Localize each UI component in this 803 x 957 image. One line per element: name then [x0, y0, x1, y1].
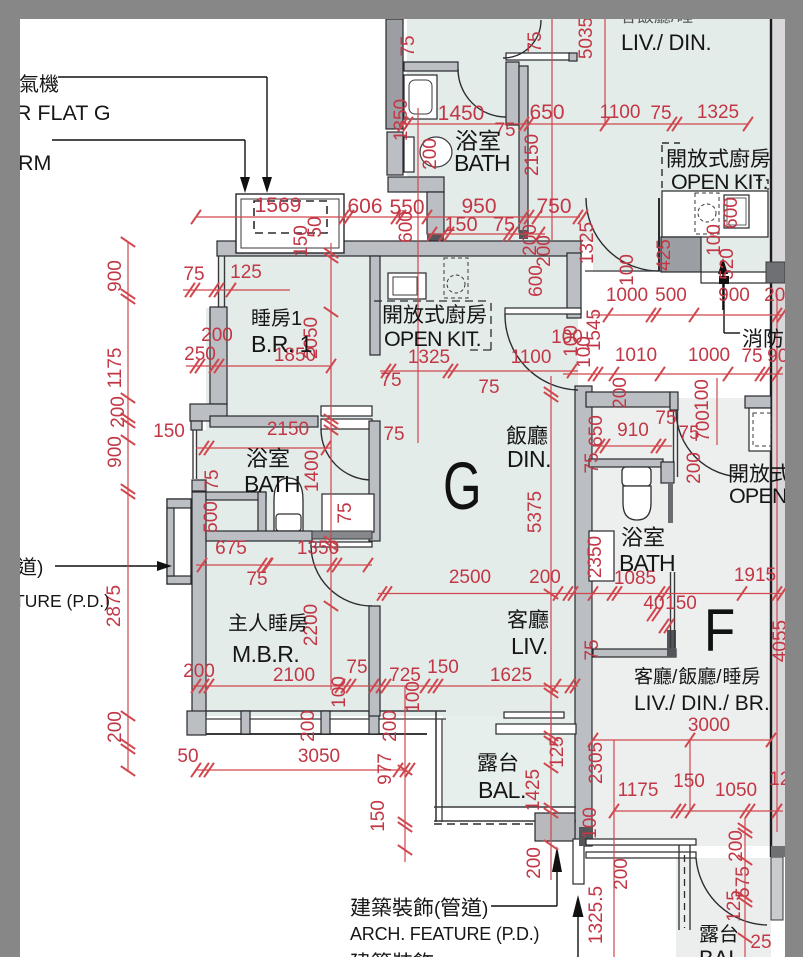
svg-text:900: 900 [105, 436, 126, 468]
svg-text:1450: 1450 [438, 102, 485, 125]
svg-text:75: 75 [202, 469, 223, 490]
svg-text:75: 75 [650, 103, 671, 124]
svg-text:200: 200 [684, 452, 705, 484]
svg-text:BATH: BATH [619, 550, 675, 576]
svg-text:1050: 1050 [715, 780, 757, 801]
svg-text:200: 200 [726, 830, 747, 862]
svg-text:650: 650 [586, 415, 607, 447]
svg-text:OPEN KIT.: OPEN KIT. [671, 170, 768, 194]
svg-text:425: 425 [654, 239, 675, 271]
svg-text:LIV./ DIN./ BR.: LIV./ DIN./ BR. [634, 692, 770, 715]
svg-text:): ) [482, 899, 488, 920]
svg-text:75: 75 [383, 424, 404, 445]
svg-text:(: ( [434, 899, 441, 920]
svg-text:900: 900 [718, 285, 750, 306]
svg-text:200: 200 [611, 858, 632, 890]
svg-text:25: 25 [750, 932, 771, 953]
svg-text:600: 600 [526, 265, 547, 297]
svg-text:200: 200 [105, 711, 126, 743]
svg-text:75: 75 [493, 214, 515, 236]
svg-text:1: 1 [291, 308, 302, 330]
svg-text:100: 100 [403, 681, 424, 713]
svg-text:1625: 1625 [490, 665, 532, 686]
svg-text:150: 150 [153, 421, 185, 442]
svg-text:BATH: BATH [244, 471, 300, 497]
svg-text:1000: 1000 [688, 345, 730, 366]
svg-text:G: G [443, 450, 482, 524]
svg-text:RM: RM [18, 151, 51, 175]
svg-text:150: 150 [427, 657, 459, 678]
svg-text:100: 100 [329, 676, 350, 708]
svg-text:LIV./ DIN.: LIV./ DIN. [621, 30, 711, 55]
svg-text:): ) [37, 558, 43, 579]
svg-text:F: F [704, 597, 735, 664]
svg-text:50: 50 [305, 216, 326, 237]
svg-text:1010: 1010 [615, 345, 657, 366]
svg-text:1325: 1325 [577, 222, 598, 264]
svg-text:1400: 1400 [302, 450, 323, 492]
svg-text:200: 200 [534, 235, 555, 267]
svg-text:675: 675 [215, 538, 247, 559]
svg-text:125: 125 [230, 262, 262, 283]
svg-text:/: / [672, 667, 678, 688]
svg-text:75: 75 [346, 657, 367, 678]
svg-text:2150: 2150 [522, 134, 543, 176]
svg-text:250: 250 [184, 344, 216, 365]
svg-text:BAL.: BAL. [699, 946, 747, 957]
svg-text:OPEN: OPEN [729, 484, 787, 508]
svg-text:1569: 1569 [255, 194, 302, 217]
svg-text:150: 150 [673, 771, 705, 792]
svg-text:DIN.: DIN. [507, 446, 551, 472]
svg-text:2150: 2150 [267, 419, 309, 440]
svg-text:150: 150 [368, 800, 389, 832]
svg-text:/: / [716, 667, 722, 688]
svg-text:B.R. 1: B.R. 1 [251, 331, 312, 357]
svg-text:BATH: BATH [454, 150, 510, 176]
svg-text:200: 200 [529, 567, 561, 588]
svg-text:3050: 3050 [298, 746, 340, 767]
svg-text:100: 100 [574, 336, 595, 368]
svg-text:1100: 1100 [600, 102, 641, 123]
svg-text:977: 977 [375, 753, 396, 785]
svg-text:75: 75 [478, 377, 499, 398]
svg-text:200: 200 [380, 710, 401, 742]
svg-text:900: 900 [105, 260, 126, 292]
svg-text:700: 700 [693, 410, 714, 442]
svg-text:3000: 3000 [688, 715, 730, 736]
svg-text:910: 910 [617, 420, 649, 441]
svg-text:2350: 2350 [585, 536, 606, 578]
svg-text:650: 650 [529, 101, 564, 124]
svg-text:125: 125 [724, 890, 745, 922]
svg-text:100: 100 [580, 807, 601, 839]
svg-text:75: 75 [380, 370, 401, 391]
svg-text:5375: 5375 [525, 491, 546, 533]
svg-text:75: 75 [183, 264, 204, 285]
svg-text:500: 500 [655, 285, 687, 306]
svg-text:200: 200 [108, 396, 129, 428]
svg-text:1325: 1325 [697, 102, 739, 123]
svg-text:1325.5: 1325.5 [586, 886, 607, 944]
svg-text:1915: 1915 [734, 565, 776, 586]
svg-text:150: 150 [665, 593, 697, 614]
svg-text:75: 75 [582, 452, 603, 473]
svg-text:1100: 1100 [511, 347, 552, 368]
svg-text:1350: 1350 [391, 99, 412, 141]
svg-text:200: 200 [524, 847, 545, 879]
svg-text:606: 606 [347, 195, 382, 218]
svg-text:2500: 2500 [449, 567, 491, 588]
svg-text:600: 600 [721, 197, 742, 229]
svg-text:LIV.: LIV. [511, 633, 548, 659]
svg-text:BAL.: BAL. [478, 777, 526, 803]
svg-text:40: 40 [643, 593, 664, 614]
svg-text:5035: 5035 [576, 17, 597, 59]
svg-text:ARCH. FEATURE (P.D.): ARCH. FEATURE (P.D.) [350, 924, 539, 944]
svg-text:75: 75 [398, 35, 419, 56]
svg-text:75: 75 [582, 639, 603, 660]
svg-text:2100: 2100 [273, 665, 315, 686]
svg-text:200: 200 [183, 661, 215, 682]
svg-text:200: 200 [298, 710, 319, 742]
svg-text:75: 75 [525, 31, 546, 52]
svg-text:50: 50 [177, 746, 198, 767]
svg-text:1425: 1425 [523, 769, 544, 811]
svg-text:150: 150 [444, 214, 477, 236]
svg-text:500: 500 [201, 501, 222, 533]
svg-text:200: 200 [201, 325, 233, 346]
svg-text:75: 75 [335, 502, 356, 523]
svg-text:1175: 1175 [618, 780, 659, 801]
svg-text:100: 100 [617, 254, 638, 286]
svg-text:OPEN KIT.: OPEN KIT. [384, 327, 481, 351]
svg-text:2305: 2305 [586, 742, 607, 784]
svg-text:75: 75 [655, 408, 676, 429]
svg-text:1000: 1000 [606, 285, 648, 306]
svg-text:750: 750 [536, 195, 571, 218]
svg-text:100: 100 [692, 379, 713, 411]
svg-text:200: 200 [610, 377, 631, 409]
svg-text:75: 75 [494, 120, 515, 141]
svg-text:75: 75 [246, 569, 267, 590]
svg-text:M.B.R.: M.B.R. [232, 641, 299, 667]
svg-text:200: 200 [420, 138, 441, 170]
svg-text:1350: 1350 [297, 538, 339, 559]
svg-text:75: 75 [741, 346, 762, 367]
svg-text:1175: 1175 [105, 348, 126, 389]
svg-text:600: 600 [396, 211, 417, 243]
svg-text:125: 125 [547, 736, 568, 768]
svg-text:2200: 2200 [301, 604, 322, 646]
svg-text:520: 520 [717, 248, 738, 280]
